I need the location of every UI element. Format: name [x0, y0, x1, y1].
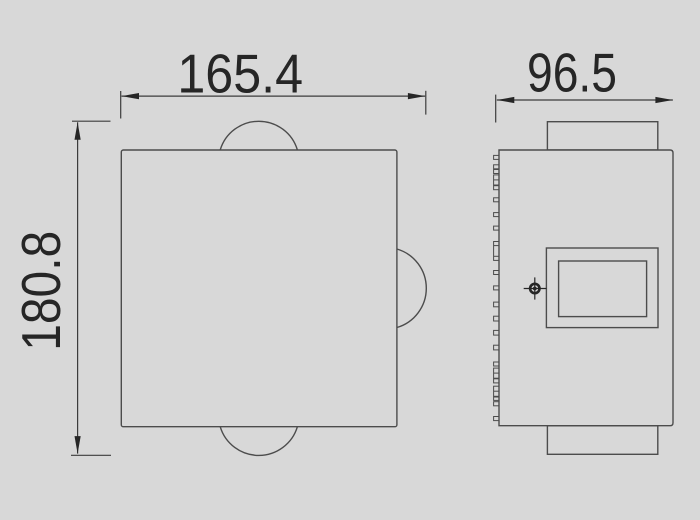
svg-text:180.8: 180.8: [11, 231, 72, 351]
svg-text:96.5: 96.5: [527, 42, 617, 103]
svg-text:165.4: 165.4: [177, 44, 303, 105]
